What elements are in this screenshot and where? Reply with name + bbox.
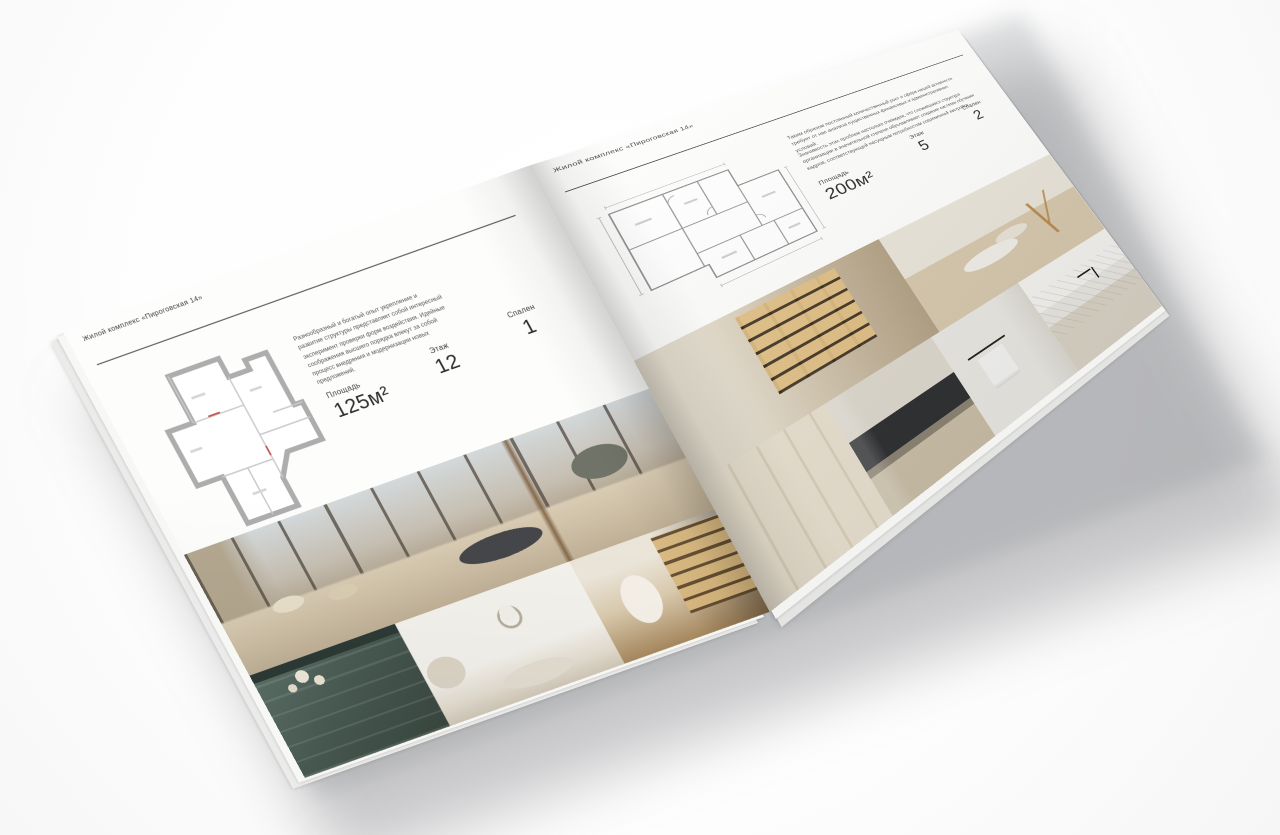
page-header: Жилой комплекс «Пироговская 14» — [82, 294, 205, 343]
stat-value: 12 — [431, 350, 465, 379]
brochure-mockup-scene: Жилой комплекс «Пироговская 14» — [0, 0, 1280, 835]
page-header: Жилой комплекс «Пироговская 14» — [552, 123, 695, 174]
stat-area: Площадь 200м² — [817, 161, 879, 204]
stat-floor: Этаж 5 — [908, 129, 936, 156]
stat-floor: Этаж 12 — [426, 340, 465, 379]
stat-bedrooms: Спален 2 — [961, 99, 993, 126]
stat-value: 5 — [912, 136, 935, 156]
stat-bedrooms: Спален 1 — [505, 302, 549, 343]
